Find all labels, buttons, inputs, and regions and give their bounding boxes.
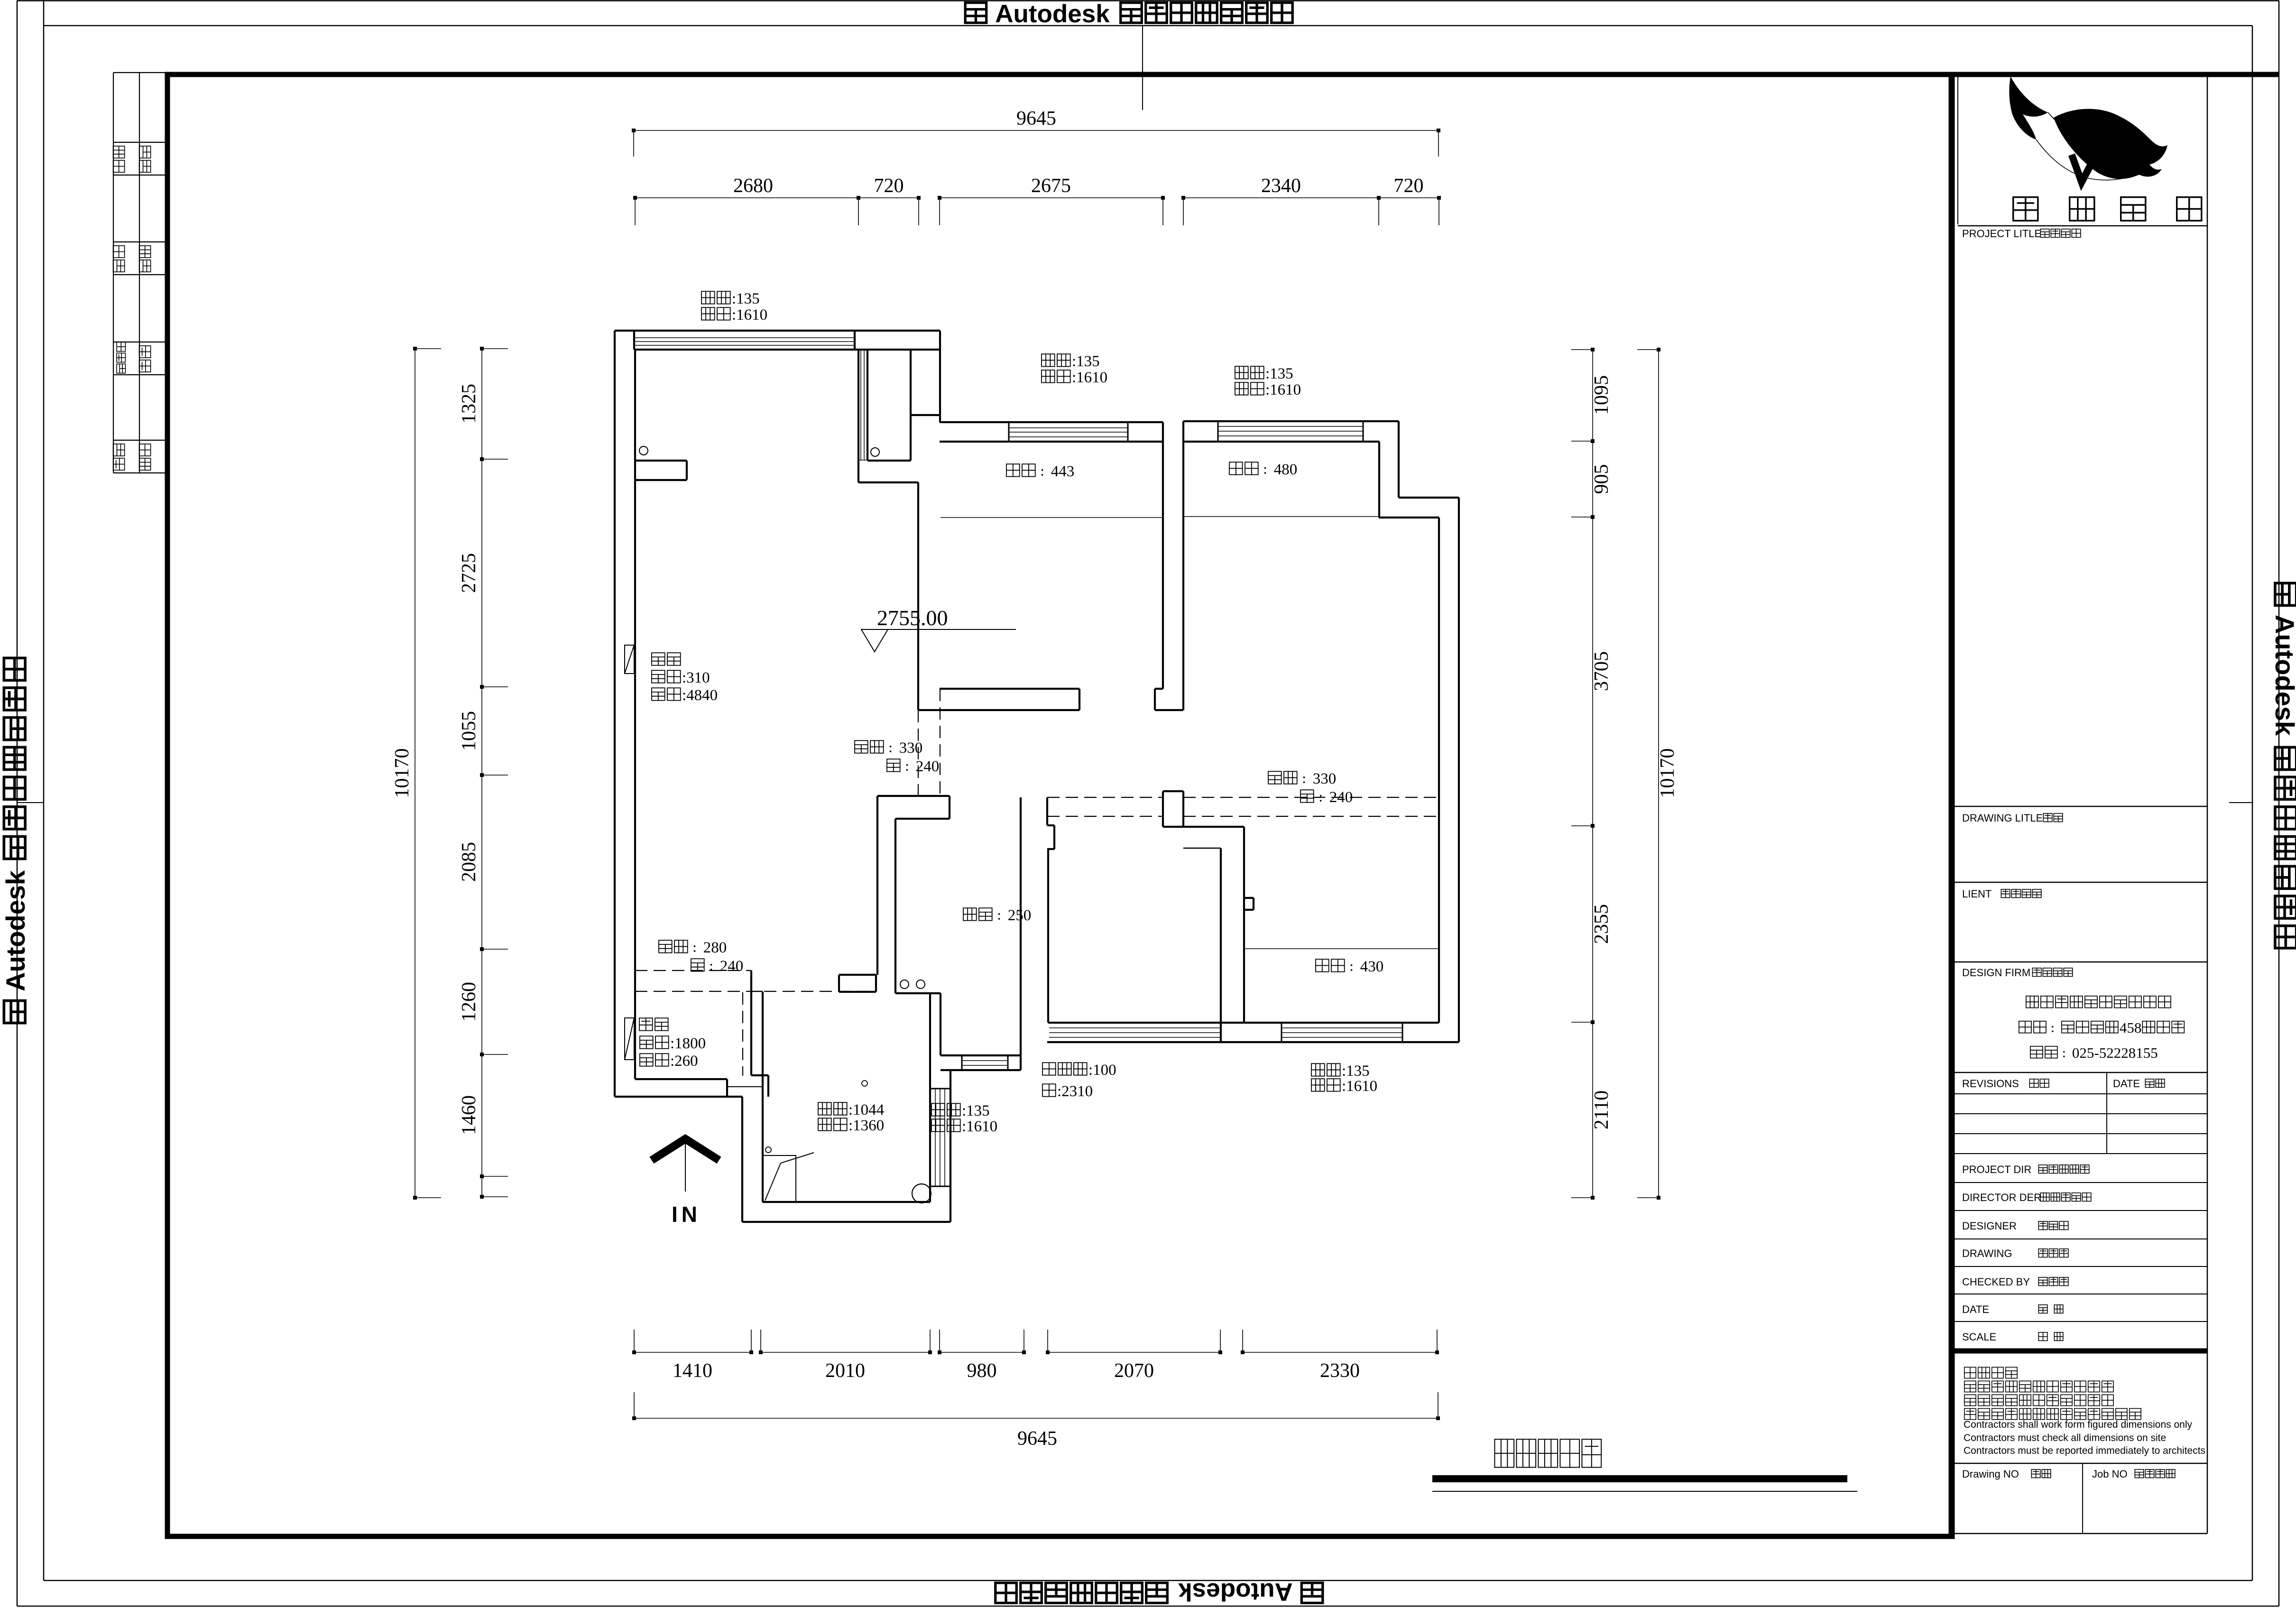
- svg-text:720: 720: [1394, 175, 1424, 197]
- svg-text:2110: 2110: [1591, 1090, 1613, 1129]
- svg-text:2330: 2330: [1320, 1360, 1360, 1382]
- svg-text:443: 443: [1051, 463, 1075, 480]
- svg-text:SCALE: SCALE: [1962, 1331, 1996, 1343]
- svg-text:330: 330: [899, 739, 923, 757]
- svg-text::260: :260: [670, 1053, 698, 1070]
- svg-text:980: 980: [967, 1360, 997, 1382]
- svg-text:250: 250: [1008, 907, 1032, 924]
- svg-text:Contractors must be reported i: Contractors must be reported immediately…: [1964, 1445, 2205, 1456]
- svg-text:9645: 9645: [1016, 108, 1056, 129]
- svg-text:PROJECT LITLE: PROJECT LITLE: [1962, 228, 2041, 240]
- svg-text::1610: :1610: [1342, 1078, 1377, 1095]
- svg-text:025-52228155: 025-52228155: [2072, 1044, 2158, 1061]
- svg-text:2355: 2355: [1591, 904, 1613, 944]
- svg-text::135: :135: [1265, 365, 1293, 382]
- svg-text::2310: :2310: [1057, 1083, 1093, 1100]
- svg-text:CHECKED BY: CHECKED BY: [1962, 1276, 2030, 1288]
- svg-text:DATE: DATE: [1962, 1303, 1989, 1315]
- svg-text::1610: :1610: [1072, 369, 1107, 386]
- svg-text::1610: :1610: [732, 306, 767, 323]
- svg-text:458: 458: [2120, 1019, 2142, 1036]
- svg-text:2755.00: 2755.00: [877, 606, 948, 630]
- svg-text:PROJECT DIR: PROJECT DIR: [1962, 1164, 2031, 1175]
- svg-text:Autodesk: Autodesk: [995, 0, 1110, 28]
- svg-text::1800: :1800: [670, 1035, 706, 1052]
- svg-text:Autodesk: Autodesk: [1178, 1578, 1293, 1606]
- svg-text:Job NO: Job NO: [2092, 1468, 2128, 1480]
- svg-text:1095: 1095: [1591, 375, 1613, 415]
- svg-text:DIRECTOR DER: DIRECTOR DER: [1962, 1192, 2041, 1203]
- svg-text:Contractors must check all dim: Contractors must check all dimensions on…: [1964, 1432, 2166, 1443]
- svg-text:240: 240: [916, 758, 940, 775]
- svg-text:480: 480: [1274, 461, 1298, 478]
- svg-text::135: :135: [1072, 353, 1100, 370]
- svg-text:3705: 3705: [1591, 651, 1613, 691]
- svg-text:905: 905: [1591, 464, 1613, 494]
- svg-text::135: :135: [962, 1102, 990, 1119]
- svg-text:Drawing NO: Drawing NO: [1962, 1468, 2019, 1480]
- svg-text:1460: 1460: [458, 1095, 480, 1135]
- svg-text:240: 240: [1329, 789, 1353, 806]
- svg-text:10170: 10170: [1657, 749, 1678, 798]
- svg-text::310: :310: [682, 669, 710, 686]
- svg-text:2680: 2680: [733, 175, 773, 197]
- svg-text::4840: :4840: [682, 687, 718, 704]
- svg-text:720: 720: [874, 175, 904, 197]
- svg-text:430: 430: [1360, 958, 1384, 975]
- svg-text:IN: IN: [672, 1202, 701, 1227]
- svg-text::1044: :1044: [848, 1101, 884, 1118]
- svg-text::135: :135: [732, 290, 760, 307]
- svg-text:Contractors shall work form fi: Contractors shall work form figured dime…: [1964, 1419, 2193, 1430]
- svg-text:1410: 1410: [673, 1360, 712, 1382]
- svg-text::1610: :1610: [962, 1118, 997, 1135]
- svg-text:280: 280: [703, 939, 727, 956]
- svg-text:LIENT: LIENT: [1962, 888, 1992, 900]
- svg-text:330: 330: [1313, 770, 1337, 787]
- svg-text:2340: 2340: [1261, 175, 1301, 197]
- svg-text:2085: 2085: [458, 842, 480, 882]
- svg-text:9645: 9645: [1017, 1428, 1057, 1450]
- svg-text::1360: :1360: [848, 1117, 884, 1134]
- svg-text:DATE: DATE: [2113, 1078, 2140, 1090]
- svg-text:10170: 10170: [391, 749, 413, 798]
- svg-text:REVISIONS: REVISIONS: [1962, 1078, 2019, 1090]
- svg-text:2675: 2675: [1031, 175, 1071, 197]
- svg-text:240: 240: [720, 958, 744, 975]
- svg-text:DRAWING: DRAWING: [1962, 1248, 2012, 1259]
- svg-text:Autodesk: Autodesk: [2270, 615, 2296, 736]
- svg-text:2010: 2010: [825, 1360, 865, 1382]
- svg-text::135: :135: [1342, 1063, 1370, 1080]
- svg-text::1610: :1610: [1265, 381, 1301, 398]
- svg-text:Autodesk: Autodesk: [0, 870, 30, 991]
- svg-text:2070: 2070: [1114, 1360, 1154, 1382]
- svg-text:DESIGNER: DESIGNER: [1962, 1220, 2017, 1232]
- svg-text:DRAWING LITLE: DRAWING LITLE: [1962, 812, 2043, 824]
- svg-text:DESIGN FIRM: DESIGN FIRM: [1962, 967, 2030, 979]
- svg-text:1055: 1055: [458, 711, 480, 751]
- svg-text:2725: 2725: [458, 553, 480, 593]
- svg-text:1260: 1260: [458, 982, 480, 1022]
- svg-text:1325: 1325: [458, 384, 480, 424]
- svg-text::100: :100: [1088, 1062, 1116, 1079]
